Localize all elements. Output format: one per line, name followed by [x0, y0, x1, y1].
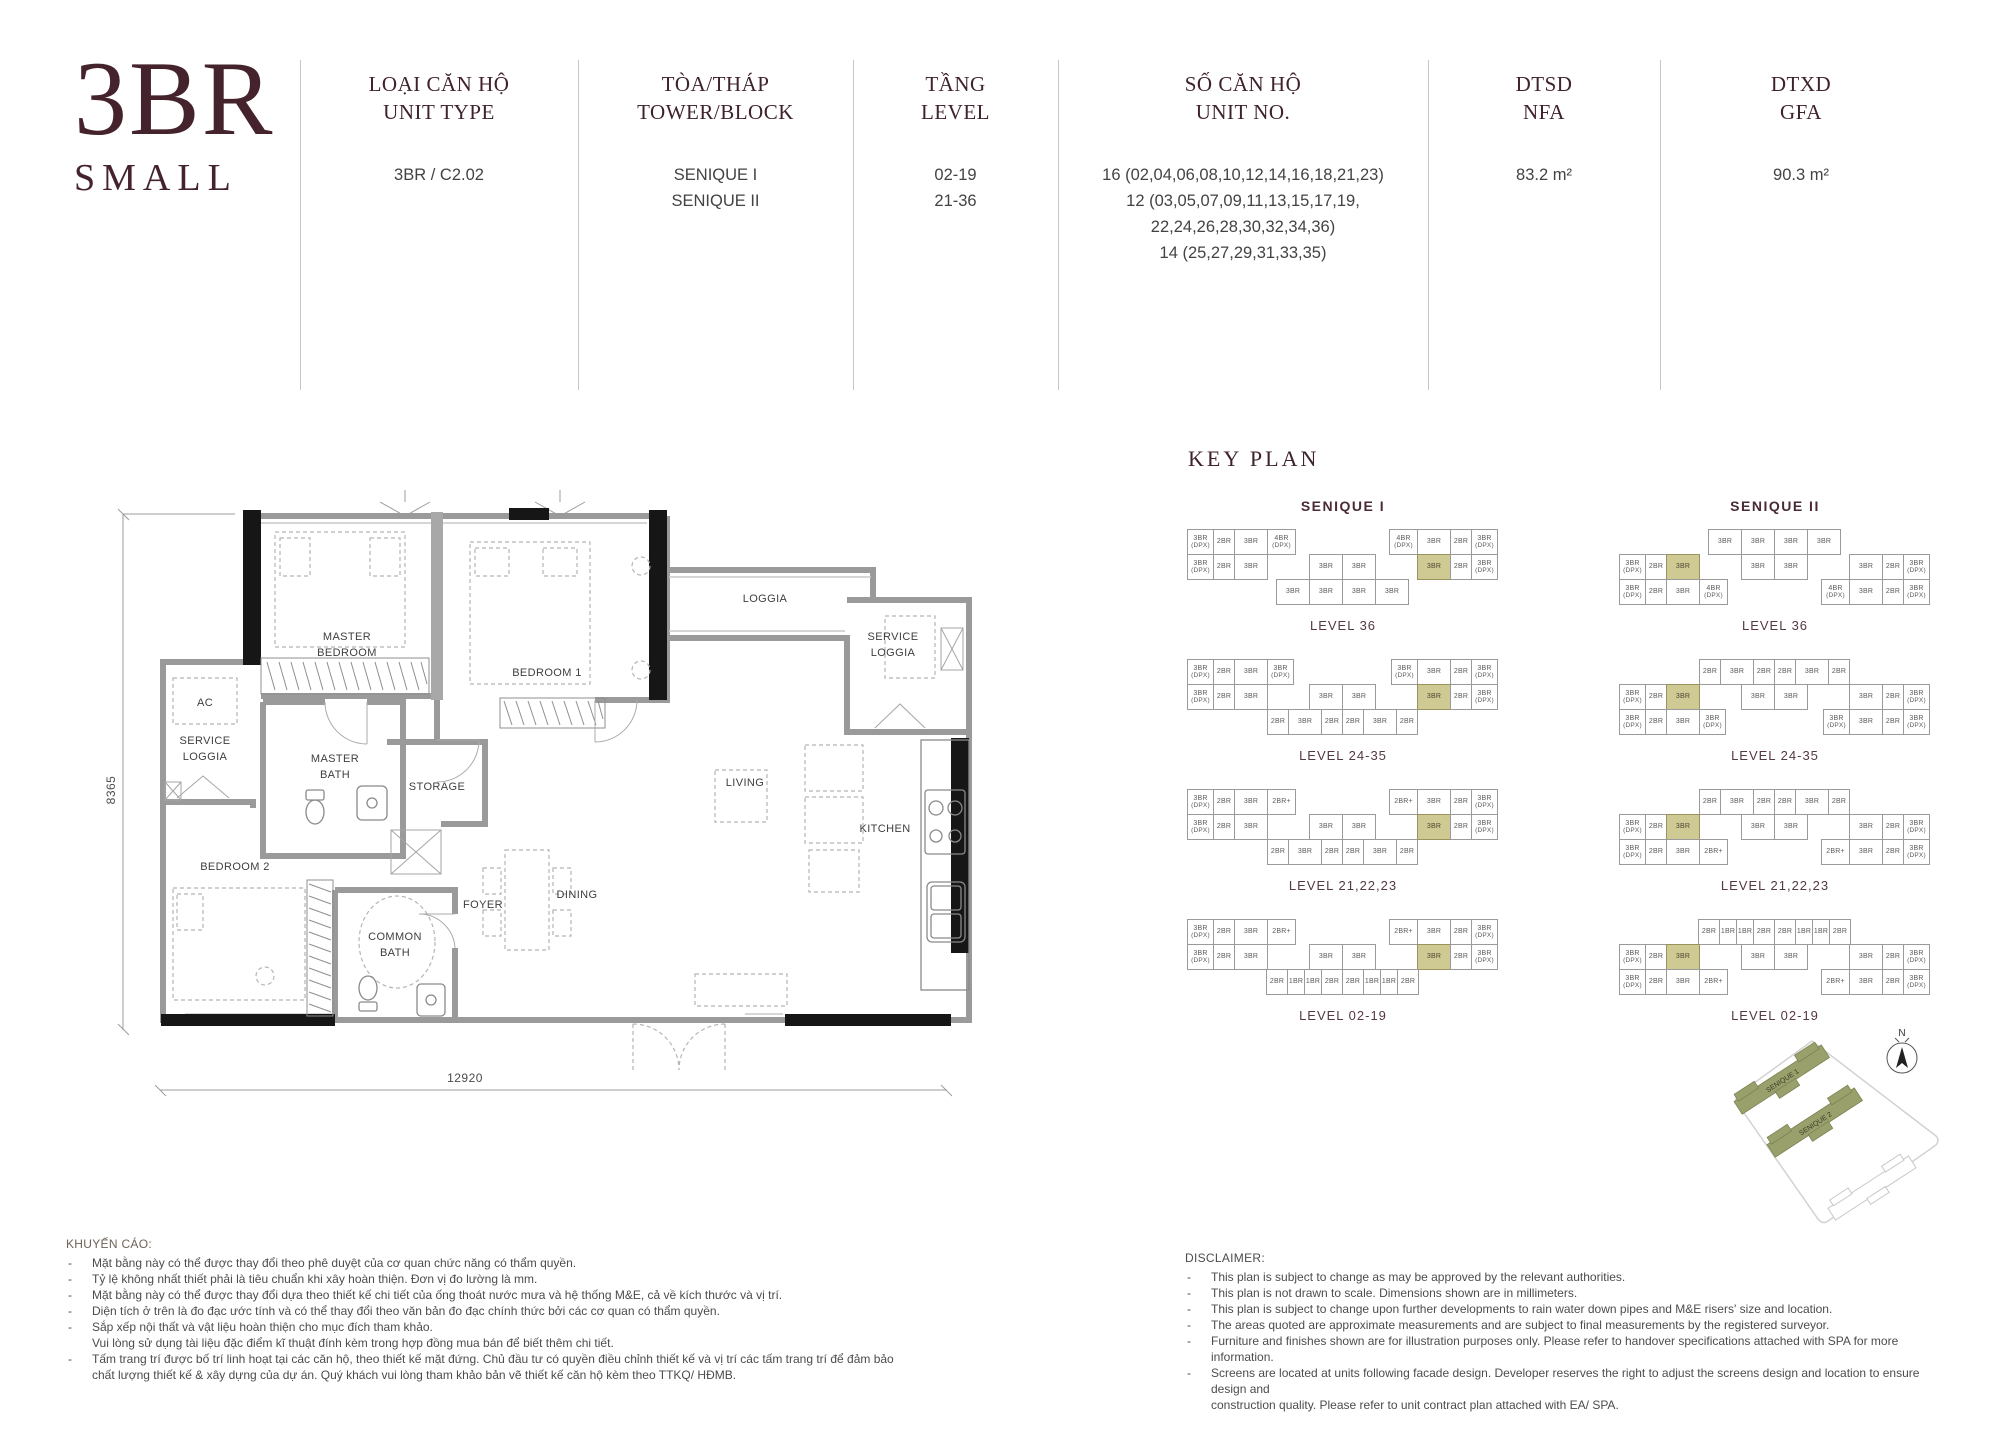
notice-line: -Screens are located at units following …: [1185, 1365, 1945, 1397]
keyplan-cell-group: 3BR2BR3BR(DPX): [1850, 814, 1930, 840]
keyplan-unit-cell: 3BR: [1234, 814, 1268, 840]
keyplan-cell-group: 3BR3BR: [1742, 944, 1808, 970]
notice-line: -Tấm trang trí được bố trí linh hoạt tại…: [66, 1351, 926, 1367]
keyplan-unit-cell: 3BR: [1708, 529, 1742, 555]
keyplan-unit-cell: 2BR: [1450, 684, 1472, 710]
keyplan-unit-cell: 3BR(DPX): [1699, 709, 1726, 735]
notice-line: -This plan is subject to change as may b…: [1185, 1269, 1945, 1285]
keyplan-unit-cell: 3BR: [1741, 529, 1775, 555]
keyplan-unit-cell: 2BR: [1882, 554, 1904, 580]
keyplan-unit-cell: 2BR: [1882, 814, 1904, 840]
keyplan-unit-cell: 3BR(DPX): [1619, 684, 1646, 710]
keyplan-row: 3BR(DPX)2BR3BR4BR(DPX)4BR(DPX)3BR2BR3BR(…: [1188, 529, 1498, 555]
keyplan-unit-cell: 3BR: [1666, 709, 1700, 735]
keyplan-cell-group: 3BR3BR: [1310, 814, 1376, 840]
keyplan-unit-cell: 3BR(DPX): [1619, 579, 1646, 605]
keyplan-cell-group: 3BR3BR: [1310, 684, 1376, 710]
keyplan-unit-cell: 3BR(DPX): [1903, 709, 1930, 735]
room-label-service-loggia-right: LOGGIA: [871, 647, 916, 659]
keyplan-row: 3BR(DPX)2BR3BR4BR(DPX)4BR(DPX)3BR2BR3BR(…: [1620, 579, 1930, 605]
keyplan-unit-cell: 3BR(DPX): [1471, 684, 1498, 710]
keyplan-unit-cell: 3BR(DPX): [1903, 579, 1930, 605]
keyplan-cell-group: 3BR3BR: [1310, 944, 1376, 970]
keyplan-row: 2BR3BR2BR2BR3BR2BR: [1620, 789, 1930, 815]
keyplan-cell-group: 3BR2BR3BR(DPX): [1418, 944, 1498, 970]
keyplan-unit-cell: 2BR: [1397, 969, 1419, 995]
keyplan-unit-cell: 3BR(DPX): [1471, 554, 1498, 580]
site-building-senique-1: SENIQUE 1: [1731, 1040, 1833, 1120]
keyplan-cell-group: 2BR3BR2BR2BR3BR2BR: [1700, 659, 1850, 685]
room-label-master-bedroom: BEDROOM: [317, 647, 377, 659]
keyplan-level-diagram: 3BR(DPX)2BR3BR2BR+2BR+3BR2BR3BR(DPX)3BR(…: [1188, 790, 1498, 893]
keyplan-row: 2BR3BR2BR2BR3BR2BR: [1188, 709, 1498, 735]
keyplan-unit-cell: 3BR: [1375, 579, 1409, 605]
keyplan-unit-cell: 3BR(DPX): [1187, 789, 1214, 815]
label-vi: LOẠI CĂN HỘ: [300, 70, 578, 98]
keyplan-unit-cell: 3BR(DPX): [1471, 659, 1498, 685]
keyplan-unit-cell: 3BR(DPX): [1903, 944, 1930, 970]
interior-wall: [431, 512, 443, 700]
header-col-nfa: DTSD NFA 83.2 m²: [1428, 70, 1660, 188]
keyplan-unit-cell: 2BR: [1342, 709, 1364, 735]
keyplan-unit-cell: 3BR(DPX): [1471, 944, 1498, 970]
keyplan-row: 3BR(DPX)2BR3BR2BR+2BR+3BR2BR3BR(DPX): [1620, 839, 1930, 865]
keyplan-cell-group: 3BR3BR: [1310, 554, 1376, 580]
keyplan-level-diagram: 3BR(DPX)2BR3BR3BR(DPX)3BR(DPX)3BR2BR3BR(…: [1188, 660, 1498, 763]
keyplan-unit-cell: 3BR: [1309, 944, 1343, 970]
keyplan-cell-group: 3BR3BR: [1742, 814, 1808, 840]
label-vi: DTSD: [1428, 70, 1660, 98]
keyplan-cell-group: 2BR1BR1BR2BR2BR1BR1BR2BR: [1267, 969, 1419, 995]
plan-height-dimension: 8365: [104, 776, 118, 805]
keyplan-unit-cell: 3BR(DPX): [1187, 944, 1214, 970]
key-plan-tower-senique-1: SENIQUE I 3BR(DPX)2BR3BR4BR(DPX)4BR(DPX)…: [1188, 490, 1498, 1030]
keyplan-unit-cell: 2BR: [1321, 709, 1343, 735]
unit-type-logo-line1: 3BR: [74, 50, 274, 148]
notice-text: This plan is subject to change upon furt…: [1211, 1301, 1945, 1317]
keyplan-unit-cell: 2BR: [1450, 789, 1472, 815]
keyplan-cell-group: 4BR(DPX)3BR2BR3BR(DPX): [1390, 529, 1498, 555]
keyplan-cell-group: 3BR2BR3BR(DPX): [1418, 554, 1498, 580]
keyplan-cell-group: 3BR3BR3BR3BR: [1277, 579, 1409, 605]
keyplan-unit-cell: 2BR: [1450, 554, 1472, 580]
keyplan-unit-cell: 3BR: [1849, 969, 1883, 995]
keyplan-unit-cell: 2BR: [1213, 684, 1235, 710]
bullet-dash: -: [66, 1255, 92, 1271]
label-vi: DTXD: [1660, 70, 1942, 98]
keyplan-unit-cell: 3BR(DPX): [1187, 919, 1214, 945]
key-plan-title: KEY PLAN: [1188, 446, 1319, 472]
notice-en-title: DISCLAIMER:: [1185, 1250, 1945, 1266]
keyplan-row: 3BR(DPX)2BR3BR3BR3BR3BR2BR3BR(DPX): [1620, 554, 1930, 580]
keyplan-unit-cell: 1BR: [1287, 969, 1305, 995]
keyplan-unit-cell: 2BR: [1753, 789, 1775, 815]
keyplan-unit-cell: 4BR(DPX): [1267, 529, 1296, 555]
notice-vi: KHUYẾN CÁO: -Mặt bằng này có thể được th…: [66, 1236, 926, 1383]
keyplan-unit-cell: 3BR(DPX): [1619, 814, 1646, 840]
notice-line: -Tỷ lệ không nhất thiết phải là tiêu chu…: [66, 1271, 926, 1287]
keyplan-unit-cell: 3BR: [1288, 709, 1322, 735]
keyplan-unit-cell: 3BR: [1774, 944, 1808, 970]
notice-text: This plan is subject to change as may be…: [1211, 1269, 1945, 1285]
keyplan-unit-cell: 2BR: [1450, 529, 1472, 555]
keyplan-unit-cell: 2BR: [1774, 789, 1796, 815]
keyplan-unit-cell: 2BR: [1321, 969, 1343, 995]
keyplan-unit-cell: 3BR: [1234, 554, 1268, 580]
keyplan-unit-cell: 2BR: [1213, 554, 1235, 580]
keyplan-unit-cell: 1BR: [1795, 919, 1813, 945]
keyplan-unit-cell: 2BR: [1267, 709, 1289, 735]
keyplan-unit-cell: 2BR: [1882, 709, 1904, 735]
keyplan-unit-cell: 3BR(DPX): [1903, 839, 1930, 865]
keyplan-unit-cell: 3BR: [1720, 659, 1754, 685]
keyplan-unit-cell: 3BR: [1309, 579, 1343, 605]
keyplan-level-label: LEVEL 02-19: [1188, 1008, 1498, 1023]
keyplan-unit-cell: 3BR(DPX): [1823, 709, 1850, 735]
keyplan-unit-cell: 3BR: [1276, 579, 1310, 605]
notice-text: Tấm trang trí được bố trí linh hoạt tại …: [92, 1351, 926, 1367]
room-label-bedroom2: BEDROOM 2: [200, 861, 270, 873]
keyplan-level-label: LEVEL 24-35: [1620, 748, 1930, 763]
keyplan-unit-cell: 2BR: [1829, 919, 1851, 945]
bullet-dash: -: [66, 1303, 92, 1319]
keyplan-row: 3BR(DPX)2BR3BR3BR3BR3BR2BR3BR(DPX): [1188, 814, 1498, 840]
bullet-dash: -: [66, 1271, 92, 1287]
header-col-tower: TÒA/THÁP TOWER/BLOCK SENIQUE I SENIQUE I…: [578, 70, 853, 214]
walls-gray: [163, 516, 969, 1020]
notice-line: -Vui lòng sử dụng tài liệu đặc điểm kĩ t…: [66, 1335, 926, 1351]
header-col-level: TẦNG LEVEL 02-19 21-36: [853, 70, 1058, 214]
keyplan-unit-cell: 3BR(DPX): [1471, 789, 1498, 815]
keyplan-unit-cell: 3BR(DPX): [1903, 814, 1930, 840]
unit-no-value: 14 (25,27,29,31,33,35): [1058, 240, 1428, 266]
keyplan-row: 3BR(DPX)2BR3BR2BR+2BR+3BR2BR3BR(DPX): [1188, 789, 1498, 815]
keyplan-cell-group: 3BR2BR3BR(DPX): [1850, 554, 1930, 580]
keyplan-unit-cell: 2BR: [1882, 839, 1904, 865]
keyplan-unit-cell: 3BR(DPX): [1187, 554, 1214, 580]
keyplan-level-label: LEVEL 36: [1620, 618, 1930, 633]
keyplan-level-diagram: 3BR3BR3BR3BR3BR(DPX)2BR3BR3BR3BR3BR2BR3B…: [1620, 530, 1930, 633]
keyplan-unit-cell: 2BR: [1645, 839, 1667, 865]
keyplan-cell-group: 2BR3BR2BR2BR3BR2BR: [1268, 839, 1418, 865]
keyplan-unit-cell: 4BR(DPX): [1699, 579, 1728, 605]
keyplan-unit-cell: 3BR: [1417, 814, 1451, 840]
keyplan-unit-cell: 2BR: [1882, 579, 1904, 605]
keyplan-unit-cell: 1BR: [1719, 919, 1737, 945]
keyplan-unit-cell: 2BR+: [1267, 919, 1296, 945]
unit-no-value: 16 (02,04,06,08,10,12,14,16,18,21,23): [1058, 162, 1428, 188]
unit-no-value: 12 (03,05,07,09,11,13,15,17,19,: [1058, 188, 1428, 214]
room-label-service-loggia-right: SERVICE: [868, 631, 919, 643]
keyplan-unit-cell: 3BR: [1342, 579, 1376, 605]
bullet-dash: -: [66, 1351, 92, 1367]
keyplan-unit-cell: 3BR: [1774, 554, 1808, 580]
keyplan-cell-group: 3BR(DPX)2BR3BR2BR+: [1188, 919, 1296, 945]
keyplan-unit-cell: 3BR: [1720, 789, 1754, 815]
room-label-dining: DINING: [557, 889, 598, 901]
keyplan-unit-cell: 3BR: [1849, 814, 1883, 840]
keyplan-cell-group: 2BR+3BR2BR3BR(DPX): [1390, 789, 1498, 815]
notice-line: -Furniture and finishes shown are for il…: [1185, 1333, 1945, 1365]
keyplan-unit-cell: 1BR: [1812, 919, 1830, 945]
keyplan-unit-cell: 2BR: [1213, 919, 1235, 945]
keyplan-cell-group: 3BR2BR3BR(DPX): [1418, 814, 1498, 840]
label-en: TOWER/BLOCK: [578, 98, 853, 126]
keyplan-cell-group: 3BR(DPX)2BR3BR: [1188, 554, 1268, 580]
notice-text: Sắp xếp nội thất và vật liệu hoàn thiện …: [92, 1319, 926, 1335]
keyplan-unit-cell: 3BR: [1774, 684, 1808, 710]
room-label-master-bath: BATH: [320, 769, 350, 781]
keyplan-unit-cell: 2BR+: [1389, 919, 1418, 945]
keyplan-unit-cell: 1BR: [1736, 919, 1754, 945]
keyplan-unit-cell: 3BR: [1309, 684, 1343, 710]
keyplan-cell-group: 3BR(DPX)2BR3BR: [1620, 814, 1700, 840]
keyplan-unit-cell: 3BR: [1342, 554, 1376, 580]
label-vi: SỐ CĂN HỘ: [1058, 70, 1428, 98]
keyplan-unit-cell: 3BR(DPX): [1471, 919, 1498, 945]
room-label-foyer: FOYER: [463, 899, 503, 911]
level-value: 21-36: [853, 188, 1058, 214]
keyplan-unit-cell: 3BR: [1417, 659, 1451, 685]
keyplan-cell-group: 3BR(DPX)2BR3BR4BR(DPX): [1188, 529, 1296, 555]
keyplan-unit-cell: 3BR(DPX): [1471, 814, 1498, 840]
notice-text: Vui lòng sử dụng tài liệu đặc điểm kĩ th…: [92, 1335, 926, 1351]
notice-text: Tỷ lệ không nhất thiết phải là tiêu chuẩ…: [92, 1271, 926, 1287]
keyplan-unit-cell: 2BR: [1698, 919, 1720, 945]
keyplan-cell-group: 3BR2BR3BR(DPX): [1850, 944, 1930, 970]
notice-text: chất lượng thiết kế & xây dựng của dự án…: [92, 1367, 926, 1383]
tower-title: SENIQUE II: [1620, 498, 1930, 514]
keyplan-cell-group: 3BR3BR3BR3BR: [1709, 529, 1841, 555]
keyplan-unit-cell: 3BR(DPX): [1267, 659, 1294, 685]
room-label-master-bedroom: MASTER: [323, 631, 371, 643]
keyplan-unit-cell: 3BR: [1741, 554, 1775, 580]
keyplan-cell-group: 3BR(DPX)3BR2BR3BR(DPX): [1392, 659, 1498, 685]
notice-line: -Mặt bằng này có thể được thay đổi dựa t…: [66, 1287, 926, 1303]
header-col-unit-type: LOẠI CĂN HỘ UNIT TYPE 3BR / C2.02: [300, 70, 578, 188]
keyplan-unit-cell: 3BR: [1666, 684, 1700, 710]
keyplan-unit-cell: 2BR: [1213, 529, 1235, 555]
notice-text: Furniture and finishes shown are for ill…: [1211, 1333, 1945, 1365]
room-label-ac: AC: [197, 697, 213, 709]
window-markers: [380, 490, 585, 516]
keyplan-unit-cell: 2BR: [1342, 969, 1364, 995]
room-label-common-bath: BATH: [380, 947, 410, 959]
gfa-value: 90.3 m²: [1660, 162, 1942, 188]
keyplan-row: 3BR3BR3BR3BR: [1620, 529, 1930, 555]
keyplan-unit-cell: 2BR: [1645, 814, 1667, 840]
notice-vi-title: KHUYẾN CÁO:: [66, 1236, 926, 1252]
keyplan-unit-cell: 3BR: [1666, 814, 1700, 840]
keyplan-unit-cell: 2BR: [1645, 579, 1667, 605]
notice-en: DISCLAIMER: -This plan is subject to cha…: [1185, 1250, 1945, 1413]
keyplan-unit-cell: 3BR: [1234, 529, 1268, 555]
keyplan-cell-group: 3BR(DPX)2BR3BR: [1620, 684, 1700, 710]
keyplan-unit-cell: 3BR: [1417, 684, 1451, 710]
notice-line: -Mặt bằng này có thể được thay đổi theo …: [66, 1255, 926, 1271]
keyplan-unit-cell: 3BR: [1741, 684, 1775, 710]
keyplan-unit-cell: 3BR: [1234, 789, 1268, 815]
bullet-dash: -: [66, 1287, 92, 1303]
north-compass-icon: N: [1887, 1028, 1917, 1073]
keyplan-unit-cell: 3BR: [1741, 814, 1775, 840]
keyplan-cell-group: 2BR3BR2BR2BR3BR2BR: [1268, 709, 1418, 735]
key-plan-section: KEY PLAN SENIQUE I 3BR(DPX)2BR3BR4BR(DPX…: [1160, 440, 1980, 1040]
keyplan-level-diagram: 2BR3BR2BR2BR3BR2BR3BR(DPX)2BR3BR3BR3BR3B…: [1620, 790, 1930, 893]
keyplan-unit-cell: 3BR(DPX): [1903, 969, 1930, 995]
keyplan-unit-cell: 3BR(DPX): [1187, 659, 1214, 685]
keyplan-cell-group: 2BR+3BR2BR3BR(DPX): [1822, 969, 1930, 995]
header-col-gfa: DTXD GFA 90.3 m²: [1660, 70, 1942, 188]
room-label-living: LIVING: [726, 777, 764, 789]
bullet-dash: -: [1185, 1301, 1211, 1317]
label-en: GFA: [1660, 98, 1942, 126]
header-col-unit-no: SỐ CĂN HỘ UNIT NO. 16 (02,04,06,08,10,12…: [1058, 70, 1428, 266]
key-plan-tower-senique-2: SENIQUE II 3BR3BR3BR3BR3BR(DPX)2BR3BR3BR…: [1620, 490, 1930, 1030]
keyplan-unit-cell: 3BR(DPX): [1619, 969, 1646, 995]
keyplan-unit-cell: 2BR: [1828, 789, 1850, 815]
keyplan-cell-group: 3BR3BR: [1742, 684, 1808, 710]
keyplan-unit-cell: 2BR: [1645, 709, 1667, 735]
keyplan-unit-cell: 3BR: [1741, 944, 1775, 970]
keyplan-cell-group: 3BR(DPX)2BR3BR3BR(DPX): [1620, 709, 1726, 735]
keyplan-level-label: LEVEL 24-35: [1188, 748, 1498, 763]
brochure-page: 3BR SMALL LOẠI CĂN HỘ UNIT TYPE 3BR / C2…: [0, 0, 2000, 1429]
keyplan-row: 2BR1BR1BR2BR2BR1BR1BR2BR: [1620, 919, 1930, 945]
keyplan-unit-cell: 2BR: [1774, 659, 1796, 685]
keyplan-row: 3BR(DPX)2BR3BR3BR3BR3BR2BR3BR(DPX): [1188, 684, 1498, 710]
keyplan-unit-cell: 3BR: [1234, 684, 1268, 710]
room-label-service-loggia-left: LOGGIA: [183, 751, 228, 763]
keyplan-unit-cell: 3BR: [1795, 659, 1829, 685]
notice-text: construction quality. Please refer to un…: [1211, 1397, 1945, 1413]
notice-line: -Diện tích ở trên là đo đạc ước tính và …: [66, 1303, 926, 1319]
room-label-common-bath: COMMON: [368, 931, 422, 943]
label-vi: TẦNG: [853, 70, 1058, 98]
keyplan-cell-group: 3BR(DPX)2BR3BR: [1620, 944, 1700, 970]
notice-text: Diện tích ở trên là đo đạc ước tính và c…: [92, 1303, 926, 1319]
keyplan-unit-cell: 3BR: [1342, 814, 1376, 840]
keyplan-unit-cell: 3BR: [1309, 554, 1343, 580]
bullet-dash: -: [1185, 1285, 1211, 1301]
keyplan-row: 3BR(DPX)2BR3BR3BR3BR3BR2BR3BR(DPX): [1620, 814, 1930, 840]
keyplan-cell-group: 3BR(DPX)2BR3BR4BR(DPX): [1620, 579, 1728, 605]
unit-type-logo: 3BR SMALL: [74, 50, 274, 200]
keyplan-unit-cell: 2BR: [1828, 659, 1850, 685]
keyplan-cell-group: 3BR(DPX)2BR3BR3BR(DPX): [1188, 659, 1294, 685]
keyplan-unit-cell: 2BR: [1699, 789, 1721, 815]
keyplan-unit-cell: 2BR: [1645, 554, 1667, 580]
keyplan-row: 3BR3BR3BR3BR: [1188, 579, 1498, 605]
notice-line: -This plan is subject to change upon fur…: [1185, 1301, 1945, 1317]
keyplan-unit-cell: 2BR: [1882, 944, 1904, 970]
room-label-bedroom1: BEDROOM 1: [512, 667, 582, 679]
keyplan-unit-cell: 3BR: [1342, 944, 1376, 970]
site-building-future: [1825, 1151, 1920, 1225]
keyplan-row: 3BR(DPX)2BR3BR3BR3BR3BR2BR3BR(DPX): [1620, 684, 1930, 710]
bullet-dash: -: [1185, 1317, 1211, 1333]
keyplan-unit-cell: 3BR: [1807, 529, 1841, 555]
notice-line: -This plan is not drawn to scale. Dimens…: [1185, 1285, 1945, 1301]
keyplan-unit-cell: 2BR: [1266, 969, 1288, 995]
notice-line: -Sắp xếp nội thất và vật liệu hoàn thiện…: [66, 1319, 926, 1335]
room-label-master-bath: MASTER: [311, 753, 359, 765]
keyplan-unit-cell: 3BR: [1417, 944, 1451, 970]
keyplan-unit-cell: 4BR(DPX): [1821, 579, 1850, 605]
keyplan-unit-cell: 4BR(DPX): [1389, 529, 1418, 555]
keyplan-unit-cell: 2BR: [1645, 944, 1667, 970]
keyplan-row: 2BR3BR2BR2BR3BR2BR: [1620, 659, 1930, 685]
keyplan-unit-cell: 2BR: [1699, 659, 1721, 685]
keyplan-unit-cell: 3BR: [1363, 709, 1397, 735]
bullet-dash: -: [1185, 1333, 1211, 1365]
keyplan-unit-cell: 3BR: [1666, 579, 1700, 605]
notice-text: Mặt bằng này có thể được thay đổi dựa th…: [92, 1287, 926, 1303]
keyplan-row: 2BR3BR2BR2BR3BR2BR: [1188, 839, 1498, 865]
keyplan-unit-cell: 1BR: [1363, 969, 1381, 995]
keyplan-cell-group: 3BR(DPX)2BR3BR: [1188, 684, 1268, 710]
notice-text: Screens are located at units following f…: [1211, 1365, 1945, 1397]
keyplan-unit-cell: 2BR+: [1699, 969, 1728, 995]
keyplan-cell-group: 3BR(DPX)3BR2BR3BR(DPX): [1824, 709, 1930, 735]
keyplan-cell-group: 2BR3BR2BR2BR3BR2BR: [1700, 789, 1850, 815]
keyplan-unit-cell: 2BR: [1882, 969, 1904, 995]
louvre-icons: [165, 628, 963, 874]
keyplan-level-diagram: 2BR3BR2BR2BR3BR2BR3BR(DPX)2BR3BR3BR3BR3B…: [1620, 660, 1930, 763]
keyplan-unit-cell: 2BR: [1450, 814, 1472, 840]
keyplan-unit-cell: 3BR(DPX): [1391, 659, 1418, 685]
keyplan-unit-cell: 3BR: [1234, 659, 1268, 685]
bullet-dash: -: [66, 1319, 92, 1335]
keyplan-level-diagram: 3BR(DPX)2BR3BR2BR+2BR+3BR2BR3BR(DPX)3BR(…: [1188, 920, 1498, 1023]
keyplan-unit-cell: 2BR: [1396, 839, 1418, 865]
keyplan-unit-cell: 3BR: [1309, 814, 1343, 840]
keyplan-cell-group: 2BR+3BR2BR3BR(DPX): [1822, 839, 1930, 865]
label-vi: TÒA/THÁP: [578, 70, 853, 98]
room-label-kitchen: KITCHEN: [859, 823, 910, 835]
keyplan-unit-cell: 2BR: [1645, 969, 1667, 995]
keyplan-unit-cell: 2BR: [1213, 944, 1235, 970]
keyplan-unit-cell: 3BR: [1849, 709, 1883, 735]
keyplan-level-label: LEVEL 21,22,23: [1620, 878, 1930, 893]
keyplan-unit-cell: 2BR: [1753, 919, 1775, 945]
keyplan-unit-cell: 3BR: [1234, 944, 1268, 970]
keyplan-unit-cell: 3BR(DPX): [1187, 529, 1214, 555]
keyplan-cell-group: 3BR(DPX)2BR3BR: [1188, 944, 1268, 970]
notice-line: -construction quality. Please refer to u…: [1185, 1397, 1945, 1413]
tower-value: SENIQUE II: [578, 188, 853, 214]
keyplan-row: 3BR(DPX)2BR3BR2BR+2BR+3BR2BR3BR(DPX): [1188, 919, 1498, 945]
label-en: LEVEL: [853, 98, 1058, 126]
keyplan-unit-cell: 1BR: [1304, 969, 1322, 995]
keyplan-unit-cell: 3BR(DPX): [1619, 554, 1646, 580]
furniture-dashed: [173, 532, 935, 1070]
north-label: N: [1898, 1028, 1905, 1039]
site-map: SENIQUE 1 SENIQUE 2 N: [1712, 1018, 1992, 1248]
keyplan-unit-cell: 3BR: [1288, 839, 1322, 865]
keyplan-unit-cell: 3BR: [1342, 684, 1376, 710]
keyplan-unit-cell: 3BR(DPX): [1619, 839, 1646, 865]
keyplan-cell-group: 3BR(DPX)2BR3BR2BR+: [1620, 839, 1728, 865]
keyplan-row: 2BR1BR1BR2BR2BR1BR1BR2BR: [1188, 969, 1498, 995]
room-label-storage: STORAGE: [409, 781, 465, 793]
keyplan-unit-cell: 3BR: [1666, 944, 1700, 970]
keyplan-unit-cell: 2BR: [1882, 684, 1904, 710]
room-label-service-loggia-left: SERVICE: [180, 735, 231, 747]
tower-title: SENIQUE I: [1188, 498, 1498, 514]
keyplan-row: 3BR(DPX)2BR3BR3BR(DPX)3BR(DPX)3BR2BR3BR(…: [1620, 709, 1930, 735]
keyplan-level-diagram: 3BR(DPX)2BR3BR4BR(DPX)4BR(DPX)3BR2BR3BR(…: [1188, 530, 1498, 633]
